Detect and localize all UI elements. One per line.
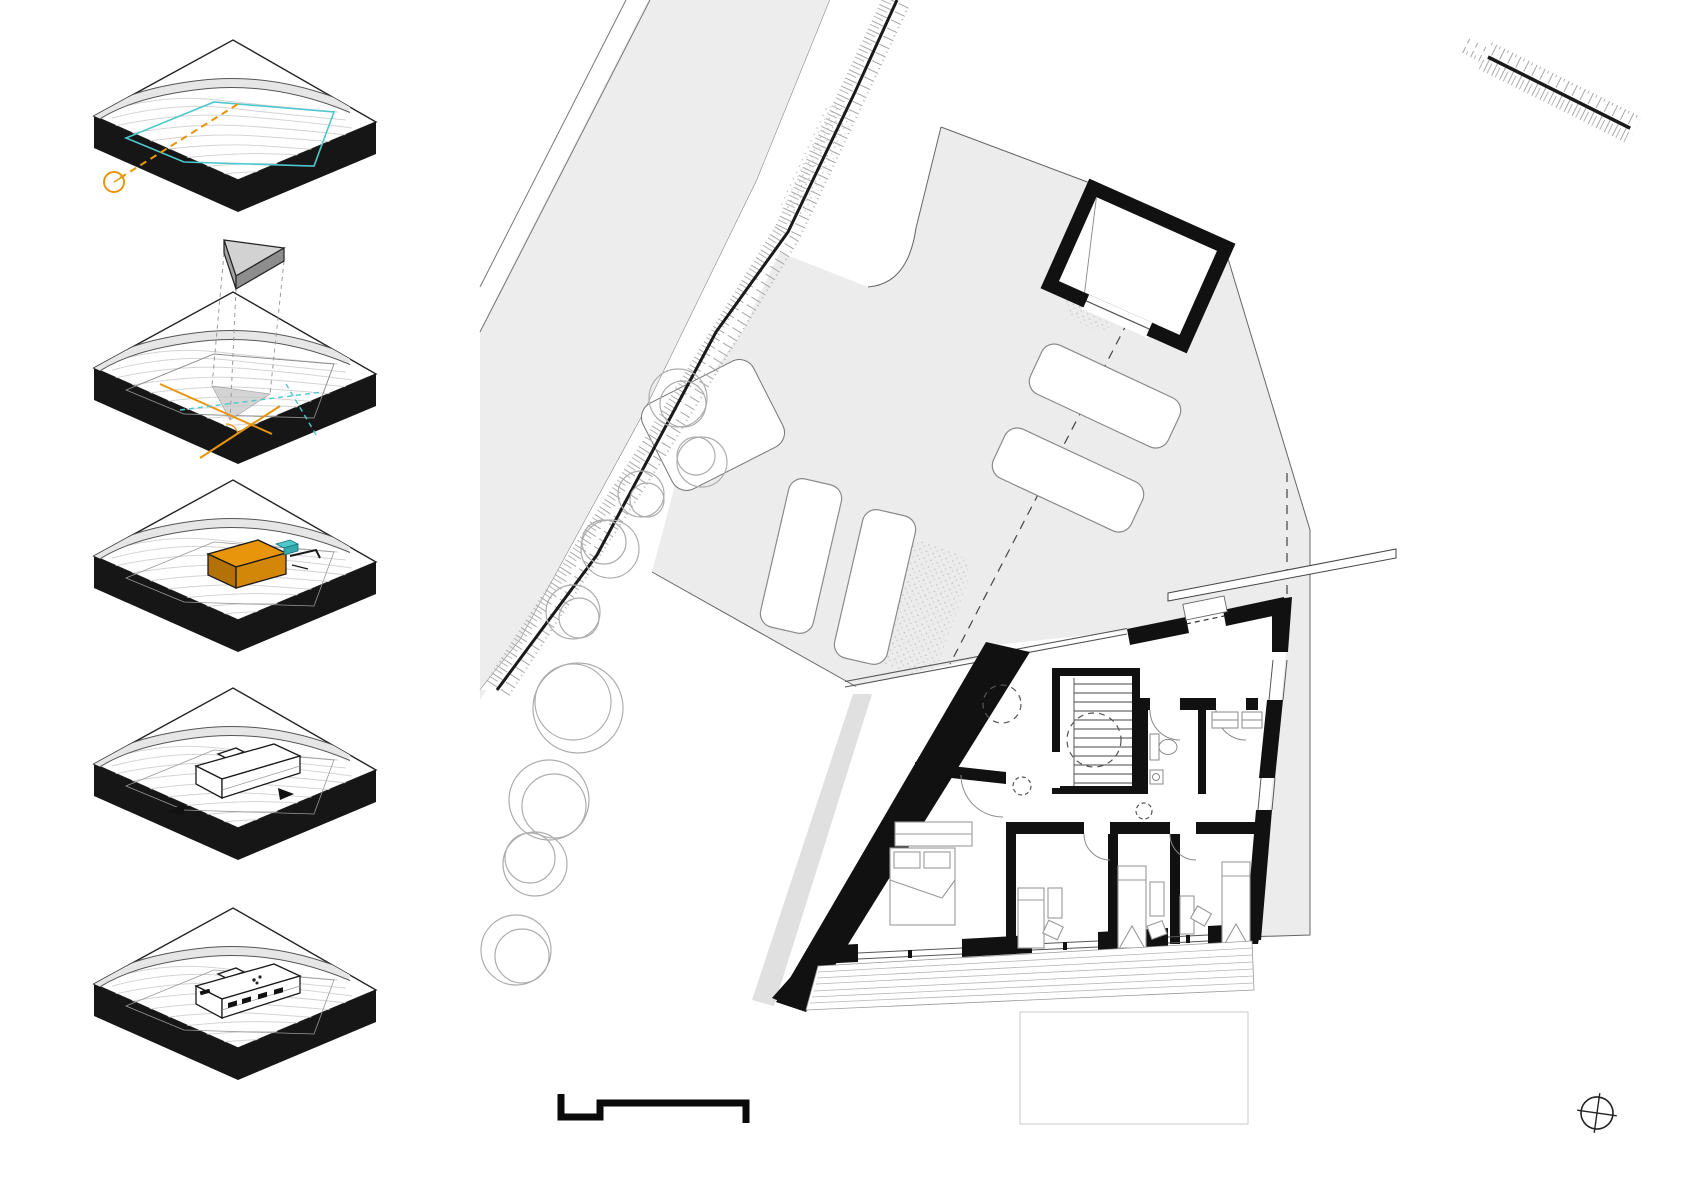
lower-terrace-outline <box>1020 1012 1248 1124</box>
scale-bar <box>561 1094 746 1123</box>
embankment-mark-topright <box>1456 31 1641 144</box>
concept-diagram-2 <box>92 240 376 464</box>
concept-diagram-5 <box>92 908 376 1080</box>
desk <box>1048 888 1062 918</box>
desk <box>1150 882 1164 916</box>
north-indicator-icon <box>1574 1090 1619 1135</box>
storage-room <box>1212 712 1262 728</box>
sink <box>1150 770 1163 784</box>
floating-wedge-volume <box>224 240 284 289</box>
tree <box>481 915 551 985</box>
site-plan <box>480 0 1641 1136</box>
tree <box>503 832 567 896</box>
concept-diagram-4 <box>92 688 376 860</box>
architectural-sheet <box>0 0 1684 1191</box>
bed-single <box>1222 862 1250 946</box>
concept-diagram-1 <box>92 40 376 212</box>
toilet-bowl <box>1159 740 1177 755</box>
bed-single <box>1118 866 1146 948</box>
tree <box>533 663 623 753</box>
bed-single <box>1018 888 1044 948</box>
toilet-tank <box>1150 734 1159 760</box>
concept-diagram-3 <box>92 480 376 652</box>
bed-double <box>890 848 955 925</box>
tree <box>509 760 589 840</box>
